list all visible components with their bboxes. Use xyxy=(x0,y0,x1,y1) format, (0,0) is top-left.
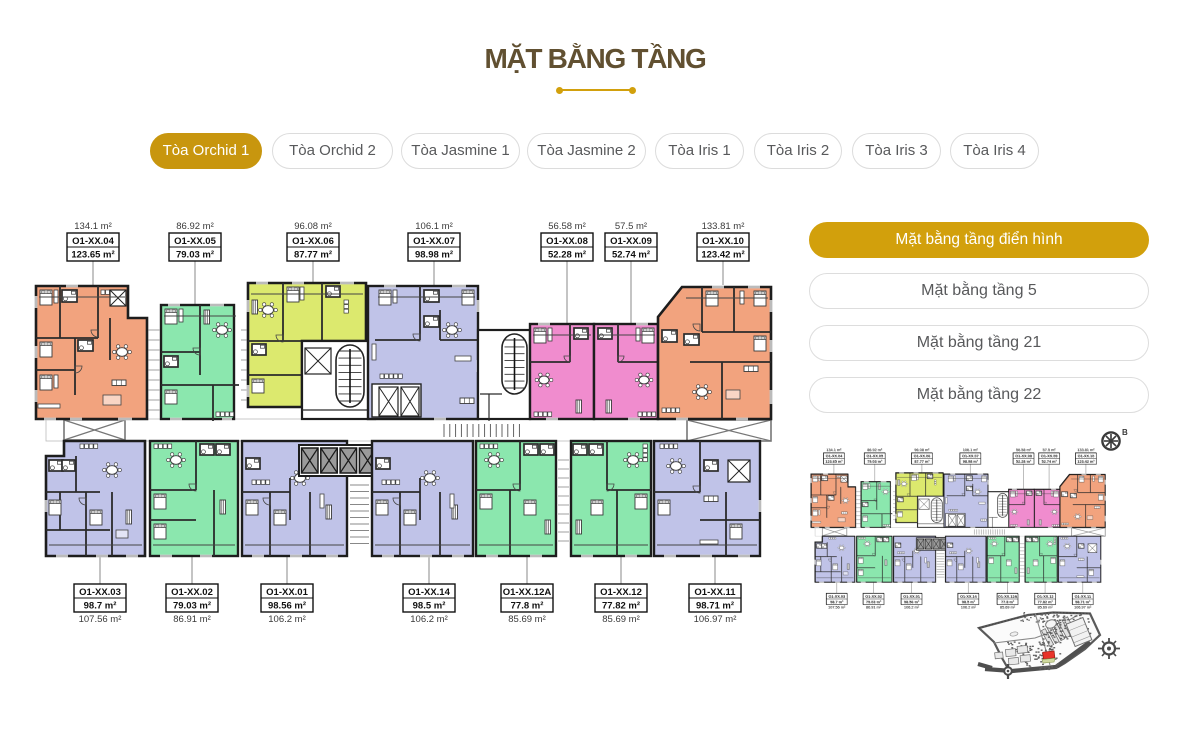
svg-text:B: B xyxy=(1122,428,1128,437)
